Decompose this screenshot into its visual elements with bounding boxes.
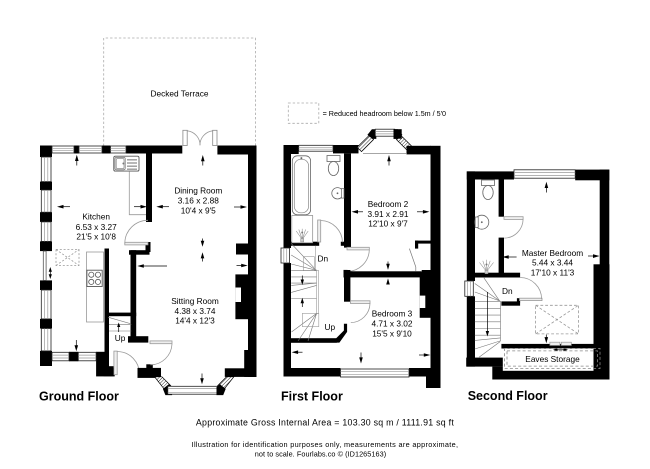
svg-text:4.38 x 3.74: 4.38 x 3.74: [174, 306, 215, 316]
svg-text:17'10 x 11'3: 17'10 x 11'3: [531, 268, 575, 278]
svg-text:Approximate Gross Internal Are: Approximate Gross Internal Area = 103.30…: [196, 417, 454, 427]
svg-text:Eaves Storage: Eaves Storage: [525, 354, 580, 364]
svg-text:Bedroom 2: Bedroom 2: [368, 199, 409, 209]
svg-text:12'10 x 9'7: 12'10 x 9'7: [368, 218, 408, 228]
svg-text:3.91 x 2.91: 3.91 x 2.91: [367, 209, 408, 219]
svg-text:Kitchen: Kitchen: [82, 212, 110, 222]
svg-text:= Reduced headroom below 1.5m: = Reduced headroom below 1.5m / 5'0: [323, 109, 446, 118]
svg-text:6.53 x 3.27: 6.53 x 3.27: [76, 222, 117, 232]
svg-text:Sitting Room: Sitting Room: [171, 296, 219, 306]
svg-text:14'4 x 12'3: 14'4 x 12'3: [175, 316, 215, 326]
svg-text:Decked Terrace: Decked Terrace: [151, 89, 209, 99]
svg-text:Up: Up: [115, 333, 126, 343]
svg-text:4.71 x 3.02: 4.71 x 3.02: [371, 318, 412, 328]
svg-text:not to scale. Fourlabs.co © (I: not to scale. Fourlabs.co © (ID1265163): [255, 450, 386, 459]
svg-text:Illustration for identificatio: Illustration for identification purposes…: [192, 440, 459, 449]
svg-text:Dn: Dn: [318, 254, 329, 264]
svg-text:3.16 x 2.88: 3.16 x 2.88: [178, 196, 219, 206]
svg-text:Up: Up: [325, 322, 336, 332]
svg-text:Second Floor: Second Floor: [468, 389, 548, 403]
svg-text:15'5 x 9'10: 15'5 x 9'10: [372, 328, 412, 338]
svg-text:Bedroom 3: Bedroom 3: [372, 308, 413, 318]
svg-text:Dining Room: Dining Room: [174, 186, 222, 196]
svg-text:10'4 x 9'5: 10'4 x 9'5: [181, 205, 216, 215]
svg-text:5.44 x 3.44: 5.44 x 3.44: [532, 258, 573, 268]
svg-text:Dn: Dn: [502, 286, 513, 296]
svg-text:First Floor: First Floor: [281, 390, 343, 404]
svg-text:Ground Floor: Ground Floor: [39, 390, 119, 404]
svg-text:21'5 x 10'8: 21'5 x 10'8: [76, 232, 116, 242]
svg-text:Master Bedroom: Master Bedroom: [522, 248, 583, 258]
